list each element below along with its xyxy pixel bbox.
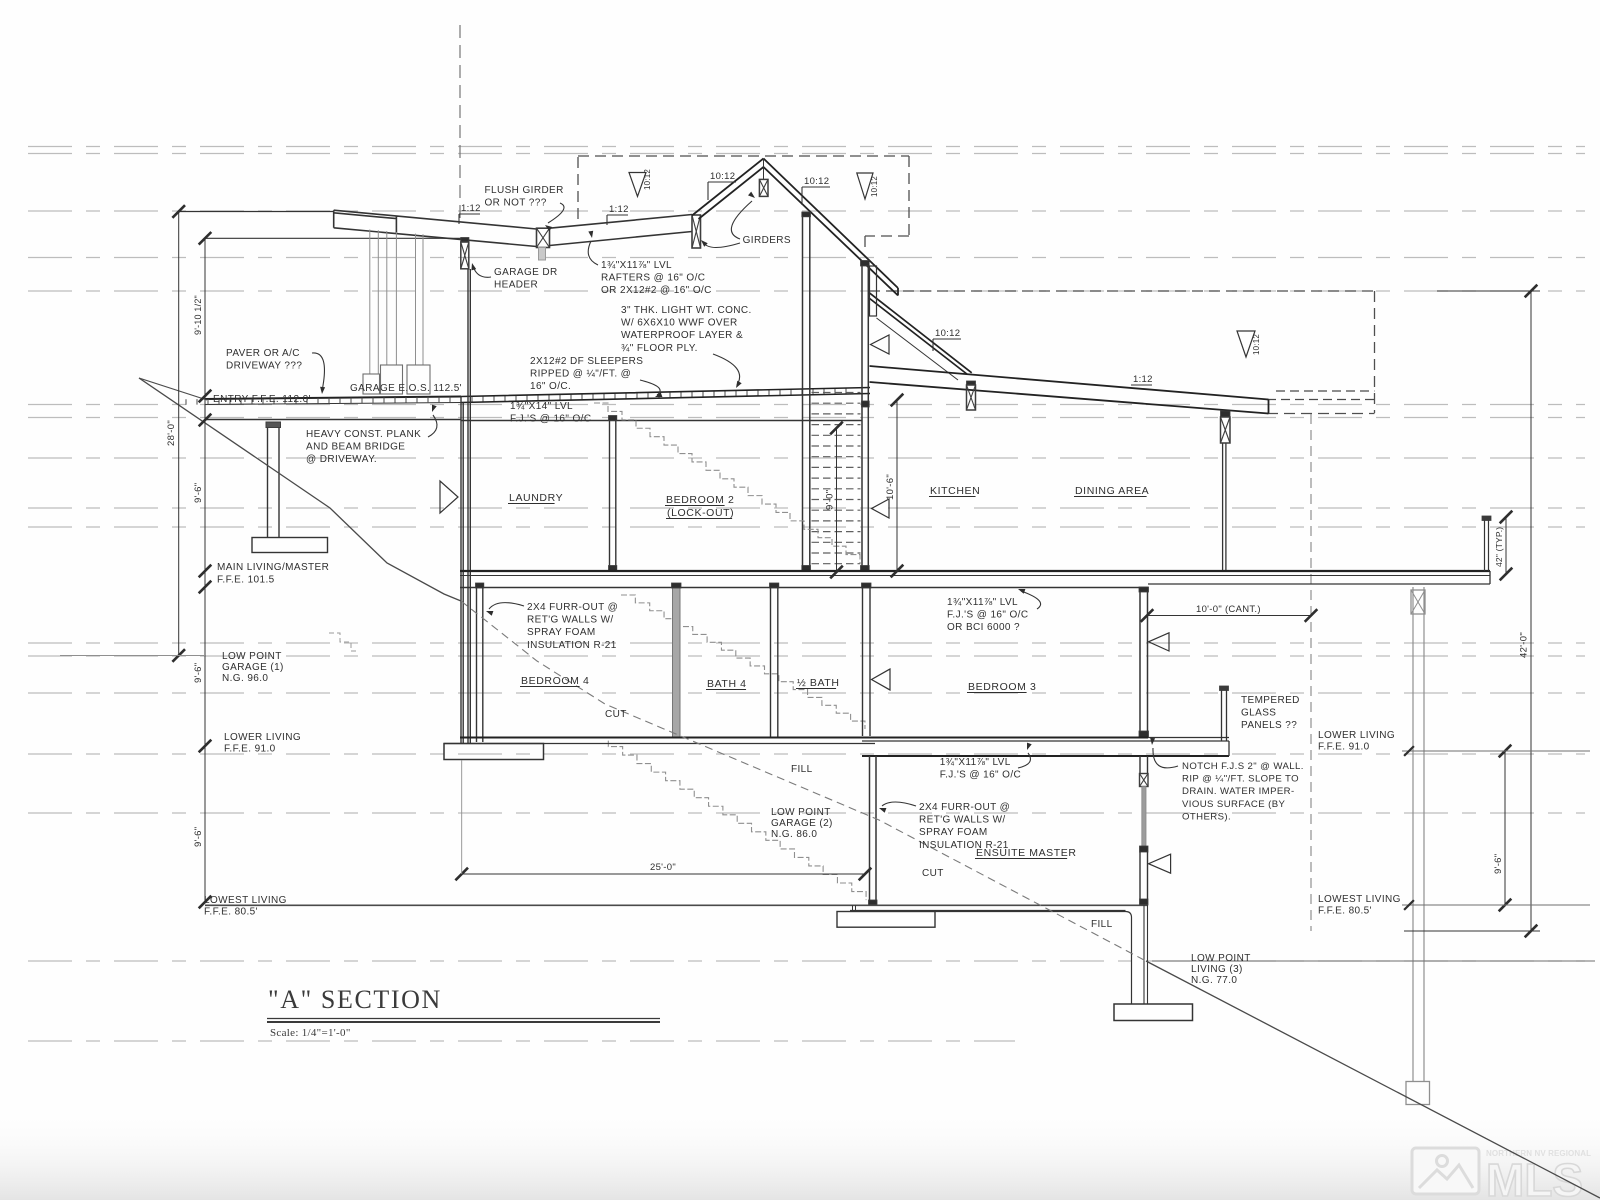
svg-text:1¾"X14" LVL: 1¾"X14" LVL [510, 401, 573, 412]
svg-text:OR BCI 6000 ?: OR BCI 6000 ? [947, 622, 1020, 633]
svg-text:@ DRIVEWAY.: @ DRIVEWAY. [306, 454, 377, 465]
svg-text:OR NOT ???: OR NOT ??? [485, 198, 547, 209]
svg-text:25'-0": 25'-0" [650, 862, 676, 873]
svg-text:VIOUS SURFACE (BY: VIOUS SURFACE (BY [1182, 799, 1285, 810]
svg-text:GIRDERS: GIRDERS [743, 235, 791, 246]
svg-text:10:12: 10:12 [935, 328, 960, 339]
svg-text:FLUSH GIRDER: FLUSH GIRDER [485, 185, 564, 196]
svg-text:F.F.E. 91.0: F.F.E. 91.0 [1318, 742, 1370, 753]
svg-text:BATH 4: BATH 4 [707, 678, 747, 690]
svg-text:OR 2X12#2 @ 16" O/C: OR 2X12#2 @ 16" O/C [601, 285, 712, 296]
svg-text:2X4 FURR-OUT @: 2X4 FURR-OUT @ [919, 802, 1010, 813]
svg-text:NOTCH F.J.S 2" @ WALL.: NOTCH F.J.S 2" @ WALL. [1182, 761, 1304, 772]
svg-text:10:12: 10:12 [643, 169, 652, 190]
svg-text:LOWER LIVING: LOWER LIVING [1318, 730, 1395, 741]
svg-text:10:12: 10:12 [870, 176, 879, 197]
svg-text:W/ 6X6X10 WWF OVER: W/ 6X6X10 WWF OVER [621, 318, 738, 329]
svg-text:LOWER LIVING: LOWER LIVING [224, 732, 301, 743]
svg-text:9'-6": 9'-6" [193, 663, 204, 683]
svg-text:28'-0": 28'-0" [166, 420, 177, 446]
svg-text:(LOCK-OUT): (LOCK-OUT) [667, 507, 734, 519]
svg-text:F.F.E. 80.5': F.F.E. 80.5' [1318, 906, 1372, 917]
svg-text:1:12: 1:12 [461, 203, 481, 214]
svg-text:10:12: 10:12 [710, 171, 735, 182]
svg-text:1¾"X11⅞" LVL: 1¾"X11⅞" LVL [601, 260, 672, 271]
svg-text:PAVER OR A/C: PAVER OR A/C [226, 348, 300, 359]
svg-text:WATERPROOF LAYER &: WATERPROOF LAYER & [621, 330, 743, 341]
svg-text:CUT: CUT [605, 709, 627, 720]
svg-text:DRIVEWAY ???: DRIVEWAY ??? [226, 361, 302, 372]
svg-text:LIVING (3): LIVING (3) [1191, 964, 1243, 975]
svg-text:LOW POINT: LOW POINT [1191, 953, 1251, 964]
svg-text:42" (TYP.): 42" (TYP.) [1494, 527, 1504, 567]
svg-text:10'-6": 10'-6" [885, 474, 896, 500]
svg-text:GARAGE DR: GARAGE DR [494, 267, 558, 278]
svg-text:GLASS: GLASS [1241, 708, 1276, 719]
svg-text:FILL: FILL [791, 764, 813, 775]
svg-text:HEAVY CONST. PLANK: HEAVY CONST. PLANK [306, 429, 421, 440]
svg-text:RET'G WALLS W/: RET'G WALLS W/ [919, 815, 1006, 826]
svg-text:RET'G WALLS W/: RET'G WALLS W/ [527, 615, 614, 626]
svg-text:F.F.E. 80.5': F.F.E. 80.5' [204, 907, 258, 918]
svg-text:3" THK. LIGHT WT. CONC.: 3" THK. LIGHT WT. CONC. [621, 305, 752, 316]
svg-text:F.J.'S @ 16" O/C: F.J.'S @ 16" O/C [947, 610, 1028, 621]
svg-text:9'-6": 9'-6" [193, 827, 204, 847]
svg-text:GARAGE (1): GARAGE (1) [222, 662, 284, 673]
svg-text:LOW POINT: LOW POINT [771, 807, 831, 818]
svg-text:N.G. 77.0: N.G. 77.0 [1191, 975, 1237, 986]
svg-text:¾" FLOOR PLY.: ¾" FLOOR PLY. [621, 343, 698, 354]
svg-text:N.G. 96.0: N.G. 96.0 [222, 673, 268, 684]
svg-text:"A" SECTION: "A" SECTION [268, 985, 442, 1014]
svg-text:1:12: 1:12 [1133, 374, 1153, 385]
svg-text:N.G. 86.0: N.G. 86.0 [771, 829, 817, 840]
svg-text:BEDROOM 2: BEDROOM 2 [666, 494, 734, 506]
svg-text:9'-10 1/2": 9'-10 1/2" [193, 295, 203, 335]
svg-text:½ BATH: ½ BATH [797, 677, 840, 689]
svg-text:BEDROOM 3: BEDROOM 3 [968, 681, 1036, 693]
svg-text:BEDROOM 4: BEDROOM 4 [521, 675, 589, 687]
svg-text:LAUNDRY: LAUNDRY [509, 492, 563, 504]
svg-text:KITCHEN: KITCHEN [930, 485, 980, 497]
svg-text:INSULATION R-21: INSULATION R-21 [527, 640, 617, 651]
svg-text:1:12: 1:12 [609, 204, 629, 215]
svg-text:F.F.E. 101.5: F.F.E. 101.5 [217, 575, 275, 586]
svg-text:HEADER: HEADER [494, 280, 538, 291]
svg-text:ENTRY F.F.E. 112.0': ENTRY F.F.E. 112.0' [213, 394, 311, 405]
svg-text:MLS: MLS [1486, 1154, 1583, 1200]
svg-text:F.F.E. 91.0: F.F.E. 91.0 [224, 744, 276, 755]
svg-text:RIP @ ¼"/FT. SLOPE TO: RIP @ ¼"/FT. SLOPE TO [1182, 774, 1299, 785]
svg-text:10:12: 10:12 [1252, 334, 1261, 355]
svg-text:9'-6": 9'-6" [1493, 854, 1504, 874]
svg-text:2X12#2 DF SLEEPERS: 2X12#2 DF SLEEPERS [530, 356, 643, 367]
svg-text:SPRAY FOAM: SPRAY FOAM [919, 827, 988, 838]
svg-text:10:12: 10:12 [804, 176, 829, 187]
svg-text:LOWEST LIVING: LOWEST LIVING [204, 895, 287, 906]
svg-text:PANELS ??: PANELS ?? [1241, 720, 1297, 731]
svg-text:F.J.'S @ 16" O/C: F.J.'S @ 16" O/C [940, 770, 1021, 781]
svg-text:1¾"X11⅞" LVL: 1¾"X11⅞" LVL [940, 757, 1011, 768]
svg-text:CUT: CUT [922, 868, 944, 879]
svg-text:RIPPED @ ¼"/FT. @: RIPPED @ ¼"/FT. @ [530, 368, 631, 380]
svg-text:DINING AREA: DINING AREA [1075, 485, 1149, 497]
svg-text:9'-6": 9'-6" [193, 483, 204, 503]
svg-text:16" O/C.: 16" O/C. [530, 381, 571, 392]
svg-text:DRAIN. WATER IMPER-: DRAIN. WATER IMPER- [1182, 786, 1295, 797]
svg-text:10'-0" (CANT.): 10'-0" (CANT.) [1196, 604, 1261, 615]
svg-text:Scale: 1/4"=1'-0": Scale: 1/4"=1'-0" [270, 1027, 351, 1039]
svg-text:GARAGE (2): GARAGE (2) [771, 818, 833, 829]
svg-text:FILL: FILL [1091, 919, 1113, 930]
svg-text:OTHERS).: OTHERS). [1182, 811, 1231, 822]
svg-text:42'-0": 42'-0" [1519, 632, 1530, 658]
svg-text:INSULATION R-21: INSULATION R-21 [919, 840, 1009, 851]
svg-text:GARAGE E.O.S. 112.5': GARAGE E.O.S. 112.5' [350, 383, 462, 394]
svg-text:2X4 FURR-OUT @: 2X4 FURR-OUT @ [527, 602, 618, 613]
svg-text:AND BEAM BRIDGE: AND BEAM BRIDGE [306, 442, 405, 453]
svg-text:LOW POINT: LOW POINT [222, 651, 282, 662]
svg-text:TEMPERED: TEMPERED [1241, 695, 1300, 706]
svg-text:MAIN LIVING/MASTER: MAIN LIVING/MASTER [217, 562, 329, 573]
svg-text:RAFTERS @ 16" O/C: RAFTERS @ 16" O/C [601, 273, 705, 284]
svg-text:9'-0": 9'-0" [825, 490, 836, 510]
svg-text:F.J.'S @ 16" O/C: F.J.'S @ 16" O/C [510, 414, 591, 425]
svg-text:1¾"X11⅞" LVL: 1¾"X11⅞" LVL [947, 597, 1018, 608]
svg-text:LOWEST LIVING: LOWEST LIVING [1318, 894, 1401, 905]
svg-text:SPRAY FOAM: SPRAY FOAM [527, 627, 596, 638]
